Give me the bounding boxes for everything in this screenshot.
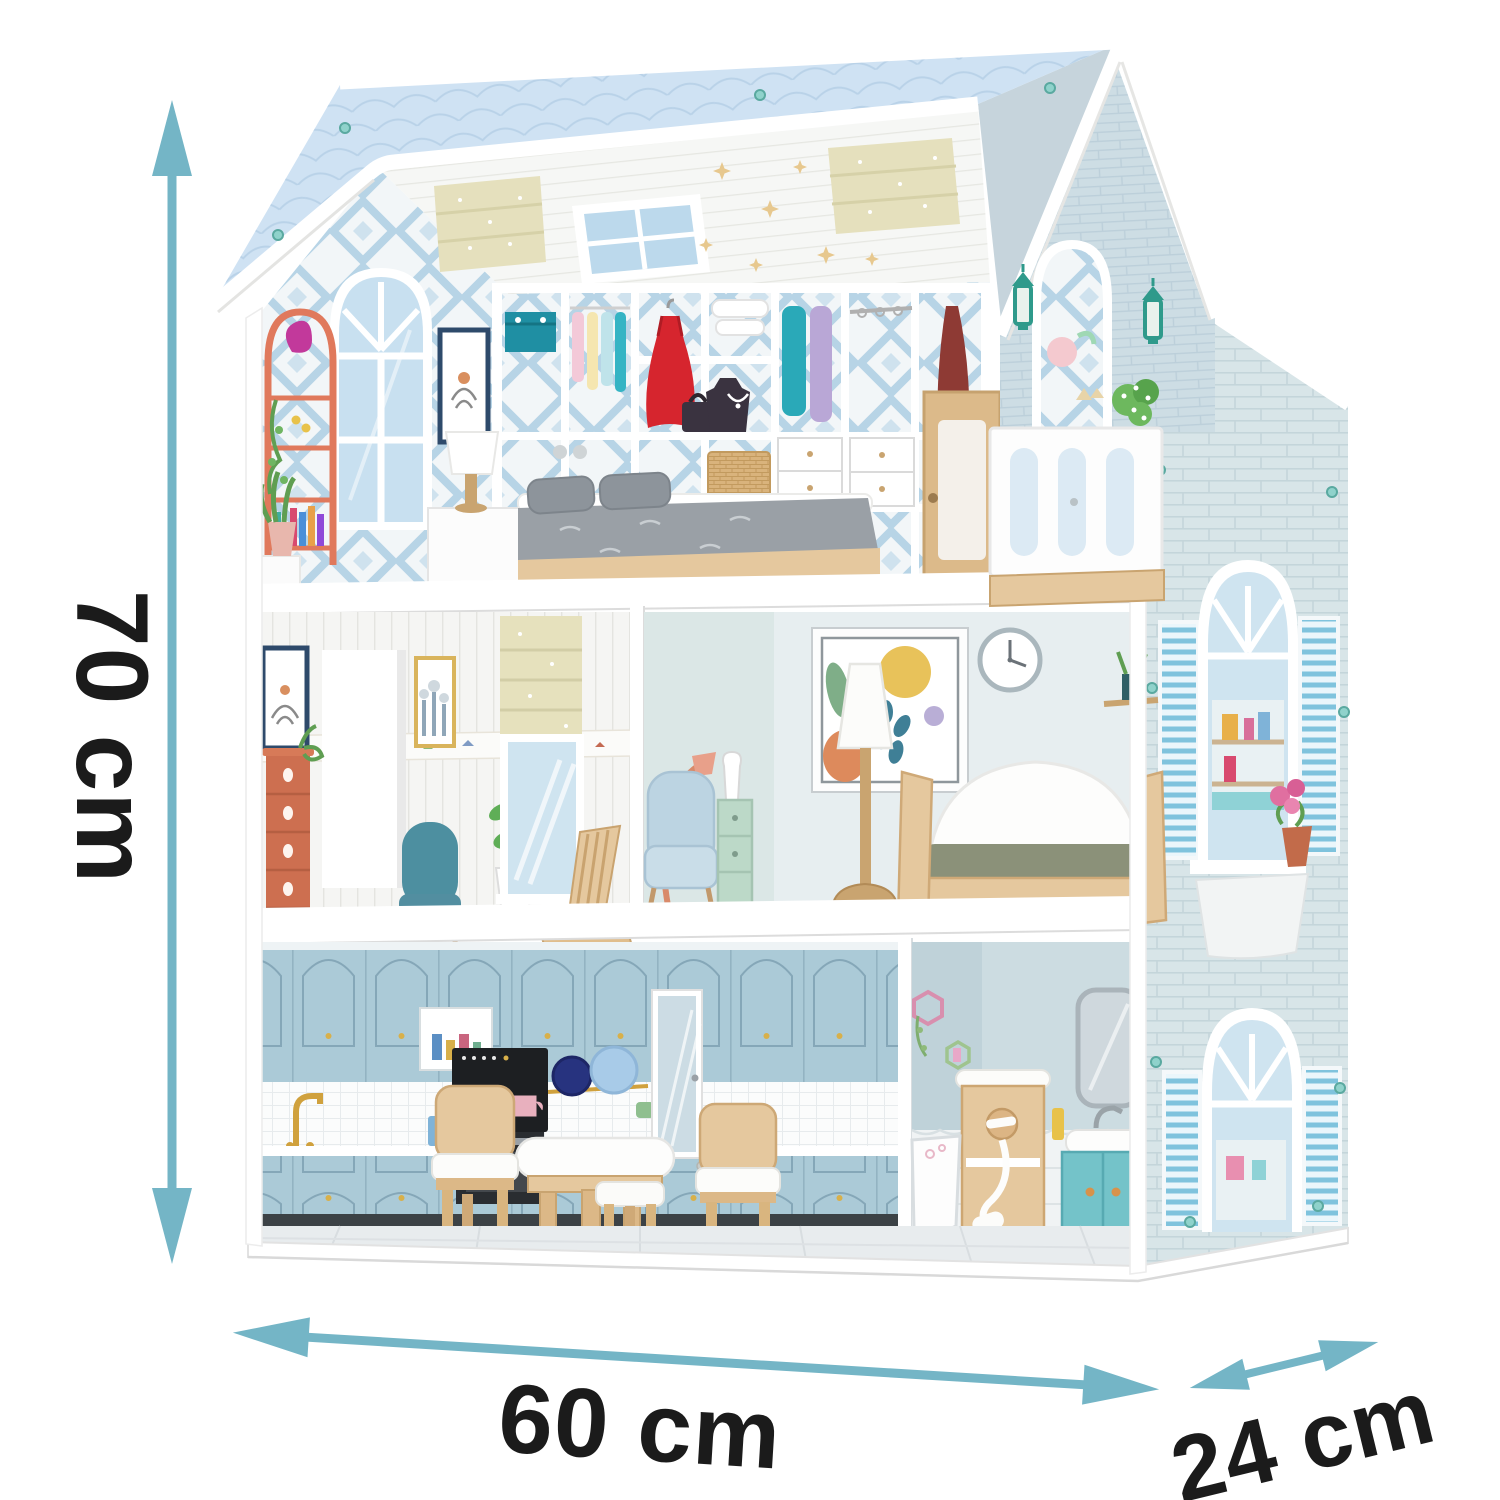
ground-floor [253, 938, 1144, 1272]
printed-blind [500, 616, 582, 738]
toiletry-print [1052, 1108, 1064, 1140]
bedroom-art-frame [263, 648, 307, 748]
roman-blind-left [434, 176, 546, 272]
shutter-right [1304, 1068, 1340, 1224]
balcony [990, 428, 1164, 606]
attic-wall-art [440, 330, 488, 442]
partition-wall [898, 938, 912, 1252]
dollhouse [212, 45, 1349, 1281]
partition-wall [630, 606, 644, 912]
skylight-window [572, 194, 710, 284]
wall-outlet [553, 445, 567, 459]
height-label: 70 cm [55, 590, 169, 884]
side-wall [1138, 318, 1349, 1272]
tower-arch-doorway [1032, 240, 1112, 430]
width-label: 60 cm [495, 1362, 784, 1489]
corner-trim-left [246, 308, 262, 1246]
bedroom-art-frame [416, 658, 454, 746]
pillow [599, 472, 671, 510]
printed-window [496, 616, 586, 904]
pillows [712, 300, 768, 335]
printed-armchair [645, 772, 717, 908]
gable-arched-window [330, 268, 432, 530]
shutter-left [1160, 622, 1198, 858]
wall-clock [980, 630, 1040, 690]
shutter-right [1300, 618, 1338, 854]
bathroom [912, 942, 1144, 1252]
product-dimension-image: 70 cm 60 cm 24 cm [0, 0, 1500, 1500]
balcony-floor [990, 570, 1164, 606]
vase-print [723, 752, 741, 800]
bedroom-window-cutout [322, 650, 406, 888]
shutter-left [1164, 1072, 1200, 1228]
wooden-shower [954, 1070, 1052, 1250]
living-room-art-frame [812, 628, 968, 792]
nightstand [428, 508, 520, 592]
roman-blind-right [828, 138, 960, 234]
storage-box [505, 312, 556, 352]
window-flower-box [1196, 874, 1308, 958]
wall-outlet [573, 445, 587, 459]
pillow [527, 476, 595, 515]
